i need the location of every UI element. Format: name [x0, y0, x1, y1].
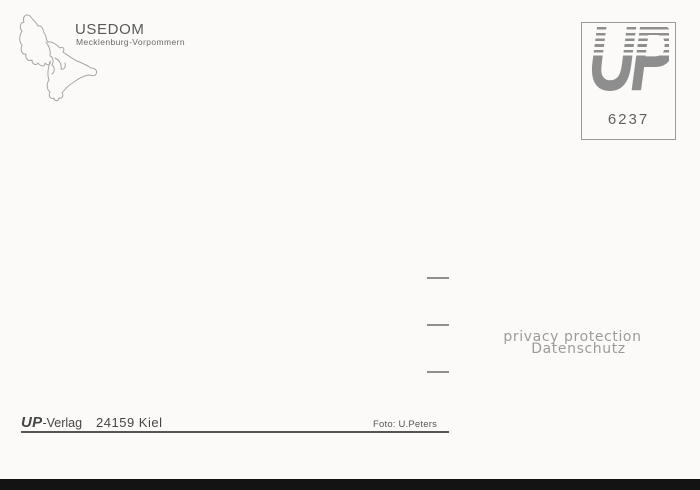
- publisher-imprint: UP-Verlag24159 Kiel: [21, 414, 163, 431]
- imprint-postal-city: 24159 Kiel: [96, 415, 162, 430]
- up-logo-text: UP: [588, 10, 669, 106]
- postcard-back: USEDOM Mecklenburg-Vorpommern UP 6237 pr…: [0, 0, 700, 490]
- up-publisher-logo: UP: [568, 10, 689, 106]
- address-line: [427, 371, 449, 373]
- address-line: [427, 324, 449, 326]
- address-line: [427, 277, 449, 279]
- publisher-card-number: 6237: [582, 111, 675, 128]
- imprint-rule: [21, 431, 449, 433]
- island-lagoon-line: [46, 42, 54, 74]
- photo-credit: Foto: U.Peters: [373, 419, 437, 430]
- region-title: USEDOM: [75, 21, 144, 38]
- privacy-watermark: privacy protection Datenschutz: [480, 331, 665, 355]
- imprint-brand: UP: [21, 414, 42, 431]
- island-inner-lake: [55, 58, 65, 69]
- region-subtitle: Mecklenburg-Vorpommern: [76, 37, 185, 47]
- publisher-stamp-box: UP 6237: [581, 22, 676, 140]
- imprint-brand-suffix: -Verlag: [42, 416, 82, 430]
- scan-bottom-bar: [0, 479, 700, 490]
